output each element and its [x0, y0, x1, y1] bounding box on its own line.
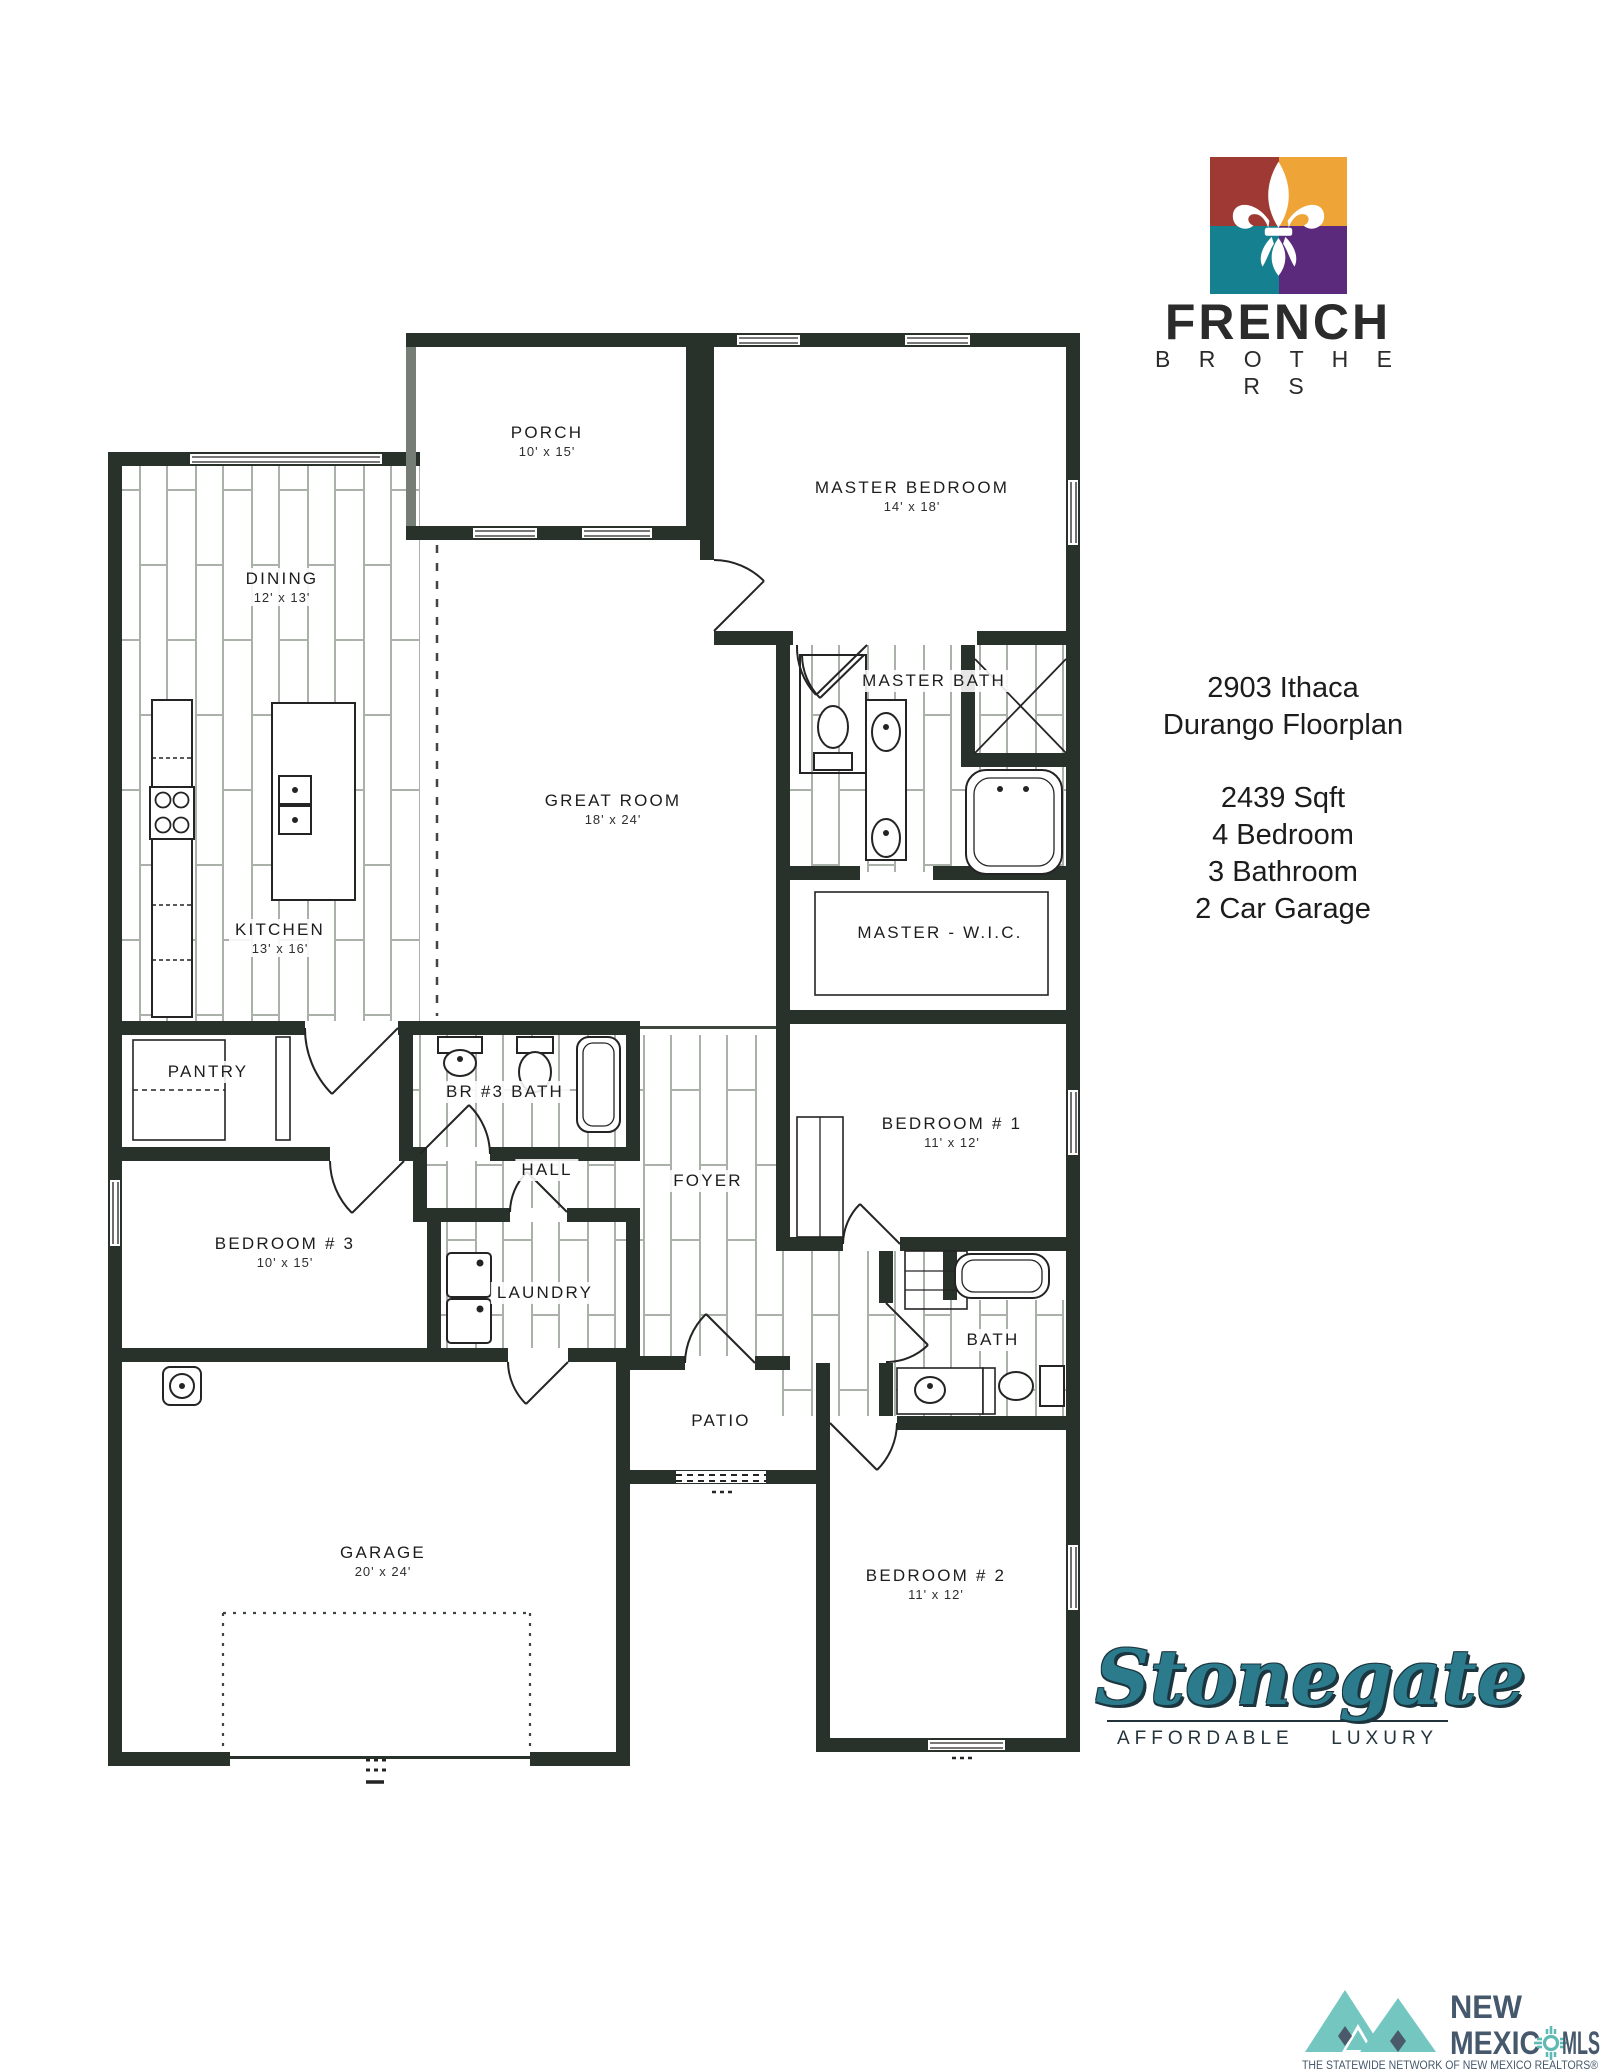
info-beds: 4 Bedroom: [1133, 817, 1433, 854]
stonegate-tagline: AFFORDABLE LUXURY: [1095, 1722, 1460, 1750]
room-label-foyer: FOYER: [667, 1170, 749, 1192]
mls-text-mls: MLS: [1562, 2025, 1600, 2061]
room-label-patio: PATIO: [685, 1410, 757, 1432]
toilet-icon: [818, 706, 848, 748]
mls-tagline: THE STATEWIDE NETWORK OF NEW MEXICO REAL…: [1302, 2060, 1598, 2071]
washer-icon: [447, 1253, 491, 1297]
pantry-shelves: [133, 1037, 290, 1140]
info-address: 2903 Ithaca: [1133, 670, 1433, 707]
room-label-bedroom-3: BEDROOM # 3 10' x 15': [209, 1233, 361, 1271]
room-label-br3-bath: BR #3 BATH: [440, 1081, 570, 1103]
info-plan: Durango Floorplan: [1133, 707, 1433, 744]
room-label-dining: DINING 12' x 13': [240, 568, 325, 606]
room-label-bedroom-1: BEDROOM # 1 11' x 12': [876, 1113, 1028, 1151]
room-label-porch: PORCH 10' x 15': [505, 422, 589, 460]
sink-icon: [915, 1377, 945, 1403]
info-garage: 2 Car Garage: [1133, 891, 1433, 928]
room-label-great-room: GREAT ROOM 18' x 24': [539, 790, 688, 828]
room-label-kitchen: KITCHEN 13' x 16': [229, 919, 331, 957]
room-label-garage: GARAGE 20' x 24': [334, 1542, 432, 1580]
toilet-icon: [999, 1372, 1033, 1400]
room-label-bedroom-2: BEDROOM # 2 11' x 12': [860, 1565, 1012, 1603]
french-brothers-subname: B R O T H E R S: [1148, 346, 1410, 400]
property-info: 2903 Ithaca Durango Floorplan 2439 Sqft …: [1133, 670, 1433, 928]
info-baths: 3 Bathroom: [1133, 854, 1433, 891]
room-label-hall: HALL: [515, 1159, 578, 1181]
mls-text-mexico: MEXIC: [1450, 2025, 1540, 2061]
floorplan-flyer-page: PORCH 10' x 15' MASTER BEDROOM 14' x 18'…: [0, 0, 1600, 2071]
fleur-de-lis-icon: [1210, 157, 1347, 294]
mls-text-new: NEW: [1450, 1989, 1523, 2025]
info-sqft: 2439 Sqft: [1133, 780, 1433, 817]
room-label-bath: BATH: [961, 1329, 1026, 1351]
mls-mountains-icon: [1305, 1990, 1436, 2052]
french-brothers-name: FRENCH: [1152, 293, 1404, 351]
room-label-master-bath: MASTER BATH: [856, 670, 1012, 692]
room-label-master-wic: MASTER - W.I.C.: [851, 922, 1028, 944]
stonegate-logo: Stonegate AFFORDABLE LUXURY: [1095, 1638, 1460, 1750]
dryer-icon: [447, 1299, 491, 1343]
new-mexico-mls-logo: NEW MEXIC MLS THE STATEWIDE NETWORK OF N…: [1300, 1980, 1600, 2071]
room-label-laundry: LAUNDRY: [491, 1282, 599, 1304]
room-label-master-bedroom: MASTER BEDROOM 14' x 18': [809, 477, 1015, 515]
stonegate-wordmark: Stonegate: [1095, 1638, 1460, 1718]
room-label-pantry: PANTRY: [162, 1061, 255, 1083]
sink-icon: [444, 1050, 476, 1076]
